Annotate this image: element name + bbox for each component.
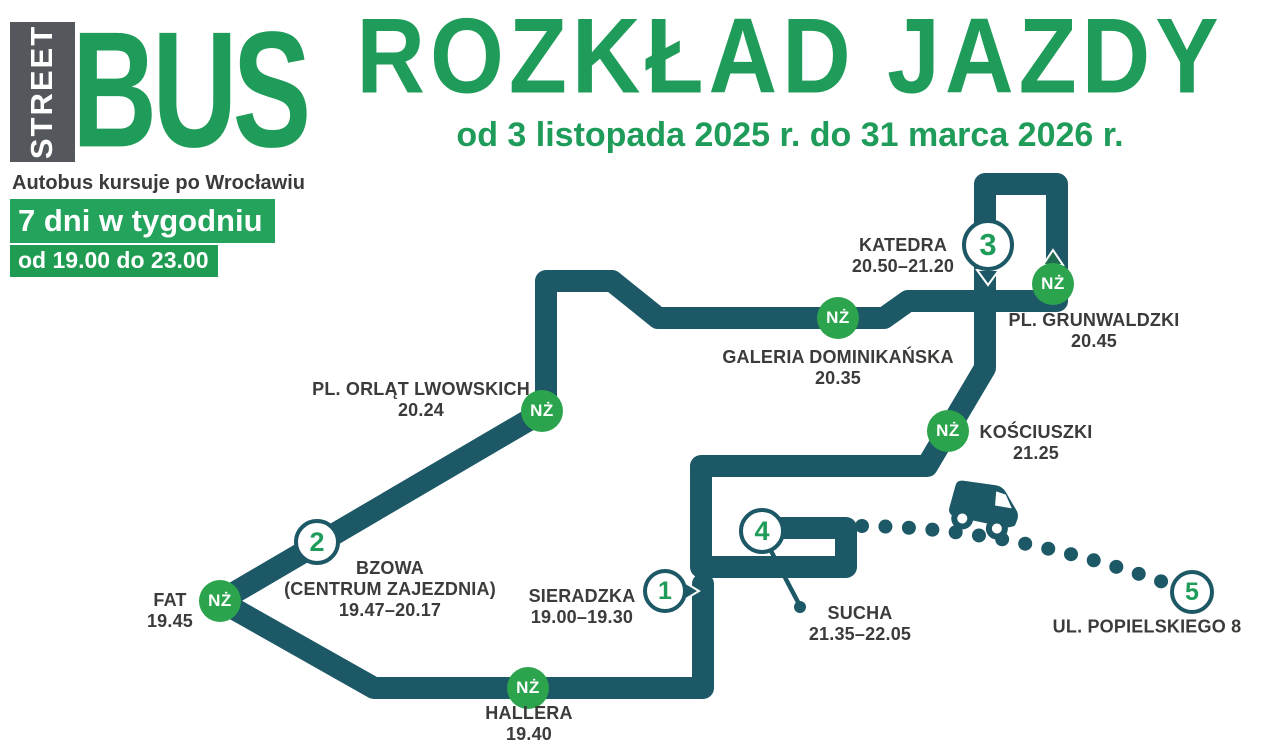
- request-stop-badge-fat: NŻ: [199, 580, 241, 622]
- logo-street-box: STREET: [10, 22, 75, 162]
- stop-label-sucha: SUCHA 21.35–22.05: [809, 603, 911, 645]
- logo-bus-text: BUS: [72, 8, 306, 173]
- stop-marker-5-popielskiego: 5: [1170, 570, 1214, 614]
- stop-label-popielskiego: UL. POPIELSKIEGO 8: [1053, 616, 1242, 637]
- streetbus-timetable-poster: STREET BUS ROZKŁAD JAZDY od 3 listopada …: [0, 0, 1265, 750]
- stop-label-katedra: KATEDRA 20.50–21.20: [852, 235, 954, 277]
- stop-label-galeria: GALERIA DOMINIKAŃSKA 20.35: [722, 347, 953, 389]
- stop-label-grunwaldzki: PL. GRUNWALDZKI 20.45: [1009, 310, 1180, 352]
- stop-label-orlat: PL. ORLĄT LWOWSKICH 20.24: [312, 379, 530, 421]
- schedule-hours-badge: od 19.00 do 23.00: [10, 245, 218, 277]
- tagline: Autobus kursuje po Wrocławiu: [12, 172, 305, 195]
- stop-label-bzowa: BZOWA (CENTRUM ZAJEZDNIA) 19.47–20.17: [284, 558, 496, 622]
- dotted-depot-line: [862, 526, 1163, 582]
- stop-label-sieradzka: SIERADZKA 19.00–19.30: [529, 586, 636, 628]
- request-stop-badge-galeria: NŻ: [817, 297, 859, 339]
- page-title: ROZKŁAD JAZDY: [330, 4, 1250, 110]
- stop-marker-4-sucha: 4: [739, 508, 785, 554]
- schedule-days-badge: 7 dni w tygodniu: [10, 199, 275, 243]
- sucha-connector-dot: [794, 601, 806, 613]
- stop-marker-3-katedra: 3: [962, 219, 1014, 271]
- stop-label-fat: FAT 19.45: [147, 590, 193, 632]
- stop-label-kosciuszki: KOŚCIUSZKI 21.25: [979, 422, 1092, 464]
- stop-marker-1-sieradzka: 1: [643, 569, 687, 613]
- validity-period: od 3 listopada 2025 r. do 31 marca 2026 …: [330, 116, 1250, 155]
- logo-street-text: STREET: [25, 25, 61, 159]
- request-stop-badge-kosciuszki: NŻ: [927, 410, 969, 452]
- stop-label-hallera: HALLERA 19.40: [485, 703, 572, 745]
- request-stop-badge-grunwaldzki: NŻ: [1032, 263, 1074, 305]
